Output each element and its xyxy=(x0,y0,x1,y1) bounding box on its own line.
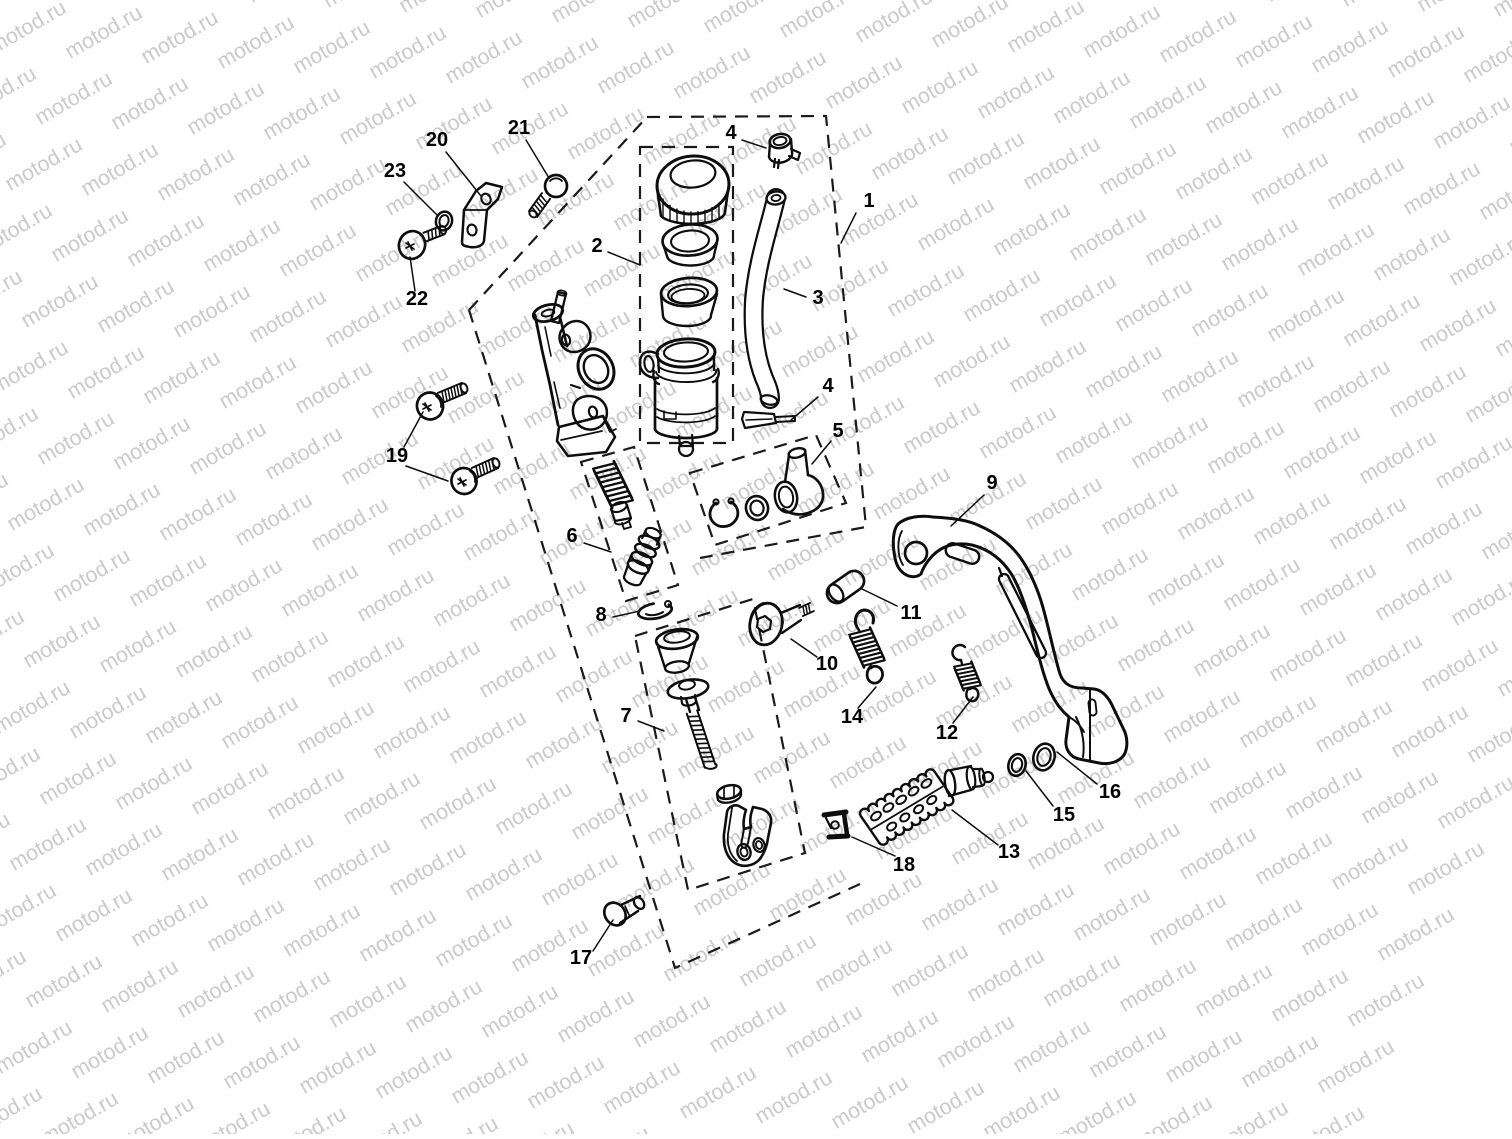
svg-text:motod.ru: motod.ru xyxy=(1281,760,1366,823)
svg-text:motod.ru: motod.ru xyxy=(95,614,180,677)
svg-text:motod.ru: motod.ru xyxy=(1413,0,1498,17)
svg-text:motod.ru: motod.ru xyxy=(201,553,286,616)
svg-text:motod.ru: motod.ru xyxy=(1417,633,1502,696)
svg-text:motod.ru: motod.ru xyxy=(1081,339,1166,402)
svg-text:motod.ru: motod.ru xyxy=(37,1086,122,1134)
svg-text:1: 1 xyxy=(863,190,874,212)
svg-text:motod.ru: motod.ru xyxy=(1399,156,1484,219)
svg-text:motod.ru: motod.ru xyxy=(307,492,392,555)
svg-text:motod.ru: motod.ru xyxy=(445,705,530,768)
svg-text:motod.ru: motod.ru xyxy=(353,563,438,626)
svg-text:3: 3 xyxy=(812,287,823,309)
svg-text:motod.ru: motod.ru xyxy=(265,1101,350,1134)
svg-text:motod.ru: motod.ru xyxy=(1049,65,1134,128)
svg-text:motod.ru: motod.ru xyxy=(611,512,696,575)
svg-text:motod.ru: motod.ru xyxy=(1115,953,1200,1016)
svg-text:motod.ru: motod.ru xyxy=(731,248,816,311)
svg-text:motod.ru: motod.ru xyxy=(229,147,314,210)
svg-text:motod.ru: motod.ru xyxy=(1249,486,1334,549)
svg-text:motod.ru: motod.ru xyxy=(811,933,896,996)
svg-text:motod.ru: motod.ru xyxy=(139,345,224,408)
svg-text:motod.ru: motod.ru xyxy=(187,756,272,819)
svg-text:motod.ru: motod.ru xyxy=(979,1080,1064,1134)
svg-text:motod.ru: motod.ru xyxy=(989,197,1074,260)
svg-text:motod.ru: motod.ru xyxy=(563,101,648,164)
svg-text:motod.ru: motod.ru xyxy=(1311,694,1396,757)
svg-text:motod.ru: motod.ru xyxy=(1175,821,1260,884)
svg-text:motod.ru: motod.ru xyxy=(339,766,424,829)
svg-text:motod.ru: motod.ru xyxy=(1265,623,1350,686)
svg-text:motod.ru: motod.ru xyxy=(857,1004,942,1067)
svg-text:motod.ru: motod.ru xyxy=(963,943,1048,1006)
svg-text:motod.ru: motod.ru xyxy=(17,269,102,332)
svg-text:motod.ru: motod.ru xyxy=(913,192,998,255)
svg-text:motod.ru: motod.ru xyxy=(705,994,790,1057)
svg-text:motod.ru: motod.ru xyxy=(1341,628,1426,691)
svg-text:motod.ru: motod.ru xyxy=(277,558,362,621)
svg-text:motod.ru: motod.ru xyxy=(1171,141,1256,204)
svg-text:motod.ru: motod.ru xyxy=(1155,4,1240,67)
svg-text:motod.ru: motod.ru xyxy=(1,132,86,195)
svg-text:motod.ru: motod.ru xyxy=(659,923,744,986)
svg-text:motod.ru: motod.ru xyxy=(1113,613,1198,676)
svg-text:motod.ru: motod.ru xyxy=(1401,496,1486,559)
svg-text:motod.ru: motod.ru xyxy=(65,680,150,743)
svg-text:motod.ru: motod.ru xyxy=(583,918,668,981)
svg-text:motod.ru: motod.ru xyxy=(593,35,678,98)
svg-text:motod.ru: motod.ru xyxy=(1251,826,1336,889)
svg-text:motod.ru: motod.ru xyxy=(569,1121,654,1134)
svg-text:motod.ru: motod.ru xyxy=(599,1055,684,1118)
svg-text:motod.ru: motod.ru xyxy=(1373,902,1458,965)
svg-text:motod.ru: motod.ru xyxy=(291,355,376,418)
svg-text:motod.ru: motod.ru xyxy=(93,274,178,337)
svg-text:motod.ru: motod.ru xyxy=(431,908,516,971)
svg-text:motod.ru: motod.ru xyxy=(1337,0,1422,12)
svg-text:motod.ru: motod.ru xyxy=(1067,542,1152,605)
svg-text:motod.ru: motod.ru xyxy=(319,0,404,13)
svg-text:18: 18 xyxy=(893,854,915,876)
svg-text:motod.ru: motod.ru xyxy=(475,639,560,702)
svg-text:motod.ru: motod.ru xyxy=(411,91,496,154)
svg-text:14: 14 xyxy=(841,706,864,728)
svg-text:motod.ru: motod.ru xyxy=(123,208,208,271)
svg-text:motod.ru: motod.ru xyxy=(1079,0,1164,63)
svg-text:motod.ru: motod.ru xyxy=(1051,405,1136,468)
svg-text:motod.ru: motod.ru xyxy=(109,411,194,474)
svg-text:motod.ru: motod.ru xyxy=(1325,491,1410,554)
svg-text:motod.ru: motod.ru xyxy=(0,1081,46,1134)
svg-text:motod.ru: motod.ru xyxy=(1279,420,1364,483)
svg-text:motod.ru: motod.ru xyxy=(243,0,328,8)
svg-text:motod.ru: motod.ru xyxy=(1387,699,1472,762)
svg-text:motod.ru: motod.ru xyxy=(31,66,116,129)
svg-text:motod.ru: motod.ru xyxy=(1099,816,1184,879)
svg-text:motod.ru: motod.ru xyxy=(107,71,192,134)
svg-text:motod.ru: motod.ru xyxy=(61,0,146,63)
svg-text:motod.ru: motod.ru xyxy=(1185,0,1270,2)
svg-text:motod.ru: motod.ru xyxy=(1069,882,1154,945)
svg-text:motod.ru: motod.ru xyxy=(1293,217,1378,280)
svg-text:motod.ru: motod.ru xyxy=(821,50,906,113)
svg-text:motod.ru: motod.ru xyxy=(325,969,410,1032)
svg-text:motod.ru: motod.ru xyxy=(887,938,972,1001)
svg-text:motod.ru: motod.ru xyxy=(461,842,546,905)
svg-text:motod.ru: motod.ru xyxy=(1005,334,1090,397)
svg-text:motod.ru: motod.ru xyxy=(503,233,588,296)
svg-text:motod.ru: motod.ru xyxy=(1159,684,1244,747)
svg-text:motod.ru: motod.ru xyxy=(399,634,484,697)
svg-text:2: 2 xyxy=(591,235,602,257)
svg-text:motod.ru: motod.ru xyxy=(791,116,876,179)
svg-text:motod.ru: motod.ru xyxy=(975,400,1060,463)
svg-text:motod.ru: motod.ru xyxy=(0,335,72,398)
svg-text:motod.ru: motod.ru xyxy=(675,1060,760,1123)
svg-text:motod.ru: motod.ru xyxy=(203,893,288,956)
svg-text:motod.ru: motod.ru xyxy=(643,786,728,849)
svg-text:motod.ru: motod.ru xyxy=(51,883,136,946)
svg-text:motod.ru: motod.ru xyxy=(1431,430,1512,493)
svg-text:motod.ru: motod.ru xyxy=(215,350,300,413)
svg-text:motod.ru: motod.ru xyxy=(245,284,330,347)
svg-text:motod.ru: motod.ru xyxy=(33,406,118,469)
svg-text:17: 17 xyxy=(570,947,592,969)
svg-text:motod.ru: motod.ru xyxy=(0,198,56,261)
svg-text:motod.ru: motod.ru xyxy=(1459,24,1512,87)
svg-text:motod.ru: motod.ru xyxy=(3,472,88,535)
svg-text:motod.ru: motod.ru xyxy=(809,593,894,656)
svg-text:motod.ru: motod.ru xyxy=(943,126,1028,189)
svg-text:motod.ru: motod.ru xyxy=(827,1070,912,1133)
svg-text:motod.ru: motod.ru xyxy=(77,137,162,200)
svg-text:motod.ru: motod.ru xyxy=(1221,892,1306,955)
svg-text:motod.ru: motod.ru xyxy=(0,0,70,59)
svg-text:motod.ru: motod.ru xyxy=(567,781,652,844)
svg-text:motod.ru: motod.ru xyxy=(749,725,834,788)
svg-text:motod.ru: motod.ru xyxy=(853,324,938,387)
svg-text:motod.ru: motod.ru xyxy=(973,60,1058,123)
svg-text:motod.ru: motod.ru xyxy=(1111,273,1196,336)
svg-text:motod.ru: motod.ru xyxy=(259,81,344,144)
svg-text:motod.ru: motod.ru xyxy=(841,867,926,930)
svg-text:motod.ru: motod.ru xyxy=(5,812,90,875)
svg-text:motod.ru: motod.ru xyxy=(1429,90,1512,153)
svg-text:motod.ru: motod.ru xyxy=(335,86,420,149)
svg-text:motod.ru: motod.ru xyxy=(0,1015,76,1078)
svg-text:motod.ru: motod.ru xyxy=(1343,968,1428,1031)
svg-text:motod.ru: motod.ru xyxy=(383,497,468,560)
svg-text:motod.ru: motod.ru xyxy=(581,578,666,641)
svg-text:5: 5 xyxy=(832,420,843,442)
svg-text:motod.ru: motod.ru xyxy=(883,258,968,321)
svg-text:motod.ru: motod.ru xyxy=(49,543,134,606)
svg-text:motod.ru: motod.ru xyxy=(1309,354,1394,417)
svg-text:motod.ru: motod.ru xyxy=(777,319,862,382)
svg-text:motod.ru: motod.ru xyxy=(745,45,830,108)
svg-text:motod.ru: motod.ru xyxy=(1007,674,1092,737)
svg-text:motod.ru: motod.ru xyxy=(447,1045,532,1108)
svg-text:motod.ru: motod.ru xyxy=(1461,364,1512,427)
svg-text:motod.ru: motod.ru xyxy=(1021,471,1106,534)
svg-text:motod.ru: motod.ru xyxy=(1463,704,1512,767)
svg-text:motod.ru: motod.ru xyxy=(1207,1095,1292,1134)
svg-text:11: 11 xyxy=(900,602,921,624)
svg-text:motod.ru: motod.ru xyxy=(471,0,556,23)
svg-text:motod.ru: motod.ru xyxy=(1189,618,1274,681)
svg-text:motod.ru: motod.ru xyxy=(395,0,480,18)
svg-text:motod.ru: motod.ru xyxy=(751,1065,836,1128)
svg-text:motod.ru: motod.ru xyxy=(247,624,332,687)
svg-text:motod.ru: motod.ru xyxy=(1205,755,1290,818)
svg-text:motod.ru: motod.ru xyxy=(173,959,258,1022)
svg-text:motod.ru: motod.ru xyxy=(551,644,636,707)
svg-text:motod.ru: motod.ru xyxy=(1235,689,1320,752)
svg-text:motod.ru: motod.ru xyxy=(825,730,910,793)
svg-text:12: 12 xyxy=(936,722,958,744)
svg-text:motod.ru: motod.ru xyxy=(597,715,682,778)
svg-text:motod.ru: motod.ru xyxy=(79,477,164,540)
svg-text:motod.ru: motod.ru xyxy=(81,817,166,880)
svg-text:motod.ru: motod.ru xyxy=(141,685,226,748)
svg-text:motod.ru: motod.ru xyxy=(623,0,708,33)
svg-text:motod.ru: motod.ru xyxy=(1157,344,1242,407)
svg-text:motod.ru: motod.ru xyxy=(1339,288,1424,351)
svg-text:motod.ru: motod.ru xyxy=(1489,0,1512,22)
svg-text:motod.ru: motod.ru xyxy=(1327,831,1412,894)
svg-text:motod.ru: motod.ru xyxy=(533,167,618,230)
svg-text:motod.ru: motod.ru xyxy=(219,1030,304,1093)
svg-text:motod.ru: motod.ru xyxy=(993,877,1078,940)
svg-text:motod.ru: motod.ru xyxy=(385,837,470,900)
svg-text:motod.ru: motod.ru xyxy=(185,416,270,479)
svg-text:motod.ru: motod.ru xyxy=(867,121,952,184)
svg-text:motod.ru: motod.ru xyxy=(547,0,632,28)
svg-text:motod.ru: motod.ru xyxy=(323,629,408,692)
svg-text:motod.ru: motod.ru xyxy=(261,421,346,484)
svg-text:motod.ru: motod.ru xyxy=(1383,19,1468,82)
svg-text:motod.ru: motod.ru xyxy=(233,827,318,890)
svg-text:motod.ru: motod.ru xyxy=(153,142,238,205)
svg-text:4: 4 xyxy=(822,375,834,397)
svg-text:motod.ru: motod.ru xyxy=(21,949,106,1012)
svg-text:motod.ru: motod.ru xyxy=(217,690,302,753)
svg-text:motod.ru: motod.ru xyxy=(1003,0,1088,58)
svg-text:9: 9 xyxy=(986,472,997,494)
svg-text:motod.ru: motod.ru xyxy=(839,527,924,590)
svg-text:motod.ru: motod.ru xyxy=(1201,75,1286,138)
svg-text:motod.ru: motod.ru xyxy=(401,974,486,1037)
svg-text:motod.ru: motod.ru xyxy=(1295,557,1380,620)
svg-text:motod.ru: motod.ru xyxy=(0,675,74,738)
svg-text:motod.ru: motod.ru xyxy=(321,289,406,352)
svg-text:motod.ru: motod.ru xyxy=(1143,547,1228,610)
svg-text:motod.ru: motod.ru xyxy=(669,40,754,103)
svg-text:motod.ru: motod.ru xyxy=(143,1025,228,1088)
svg-text:motod.ru: motod.ru xyxy=(1307,14,1392,77)
svg-text:19: 19 xyxy=(386,445,408,467)
svg-text:motod.ru: motod.ru xyxy=(35,746,120,809)
svg-text:motod.ru: motod.ru xyxy=(263,761,348,824)
svg-text:motod.ru: motod.ru xyxy=(427,228,512,291)
svg-text:motod.ru: motod.ru xyxy=(1203,415,1288,478)
svg-text:motod.ru: motod.ru xyxy=(113,1091,198,1134)
svg-text:motod.ru: motod.ru xyxy=(1369,222,1454,285)
svg-text:motod.ru: motod.ru xyxy=(959,263,1044,326)
svg-text:motod.ru: motod.ru xyxy=(371,1040,456,1103)
svg-text:motod.ru: motod.ru xyxy=(521,710,606,773)
svg-text:motod.ru: motod.ru xyxy=(63,340,148,403)
svg-text:16: 16 xyxy=(1099,781,1121,803)
svg-text:motod.ru: motod.ru xyxy=(1219,552,1304,615)
svg-text:motod.ru: motod.ru xyxy=(645,1126,730,1134)
svg-text:motod.ru: motod.ru xyxy=(1191,958,1276,1021)
svg-text:motod.ru: motod.ru xyxy=(699,0,784,38)
svg-text:motod.ru: motod.ru xyxy=(355,903,440,966)
svg-text:motod.ru: motod.ru xyxy=(1161,1024,1246,1087)
svg-text:motod.ru: motod.ru xyxy=(1237,1029,1322,1092)
svg-text:8: 8 xyxy=(595,604,606,626)
svg-text:motod.ru: motod.ru xyxy=(279,898,364,961)
svg-text:motod.ru: motod.ru xyxy=(1323,151,1408,214)
svg-text:15: 15 xyxy=(1053,804,1075,826)
svg-text:motod.ru: motod.ru xyxy=(899,395,984,458)
svg-text:motod.ru: motod.ru xyxy=(781,999,866,1062)
svg-text:motod.ru: motod.ru xyxy=(309,832,394,895)
svg-text:motod.ru: motod.ru xyxy=(1037,608,1122,671)
svg-text:motod.ru: motod.ru xyxy=(1187,278,1272,341)
svg-text:motod.ru: motod.ru xyxy=(341,1106,426,1134)
svg-text:motod.ru: motod.ru xyxy=(365,20,450,83)
svg-text:motod.ru: motod.ru xyxy=(1263,283,1348,346)
svg-text:motod.ru: motod.ru xyxy=(1277,80,1362,143)
svg-text:motod.ru: motod.ru xyxy=(1095,136,1180,199)
svg-text:motod.ru: motod.ru xyxy=(1145,887,1230,950)
svg-text:4: 4 xyxy=(725,122,737,144)
svg-text:motod.ru: motod.ru xyxy=(1009,1014,1094,1077)
svg-text:motod.ru: motod.ru xyxy=(477,979,562,1042)
svg-text:motod.ru: motod.ru xyxy=(97,954,182,1017)
svg-text:motod.ru: motod.ru xyxy=(1313,1034,1398,1097)
svg-text:motod.ru: motod.ru xyxy=(111,751,196,814)
svg-text:motod.ru: motod.ru xyxy=(915,532,1000,595)
svg-text:motod.ru: motod.ru xyxy=(929,329,1014,392)
svg-text:13: 13 xyxy=(998,841,1020,863)
svg-text:motod.ru: motod.ru xyxy=(885,598,970,661)
svg-text:motod.ru: motod.ru xyxy=(1085,1019,1170,1082)
svg-text:motod.ru: motod.ru xyxy=(295,1035,380,1098)
svg-text:motod.ru: motod.ru xyxy=(167,0,252,3)
svg-text:motod.ru: motod.ru xyxy=(1173,481,1258,544)
svg-text:motod.ru: motod.ru xyxy=(903,1075,988,1134)
svg-text:6: 6 xyxy=(566,525,577,547)
svg-text:motod.ru: motod.ru xyxy=(275,218,360,281)
svg-text:motod.ru: motod.ru xyxy=(137,5,222,68)
svg-text:motod.ru: motod.ru xyxy=(183,76,268,139)
svg-text:motod.ru: motod.ru xyxy=(231,487,316,550)
svg-text:motod.ru: motod.ru xyxy=(289,15,374,78)
svg-text:7: 7 xyxy=(620,705,631,727)
svg-text:motod.ru: motod.ru xyxy=(67,1020,152,1083)
svg-text:motod.ru: motod.ru xyxy=(733,588,818,651)
svg-text:motod.ru: motod.ru xyxy=(169,279,254,342)
svg-text:motod.ru: motod.ru xyxy=(441,25,526,88)
svg-text:motod.ru: motod.ru xyxy=(1019,131,1104,194)
svg-text:22: 22 xyxy=(406,288,428,310)
svg-text:motod.ru: motod.ru xyxy=(553,984,638,1047)
svg-text:motod.ru: motod.ru xyxy=(199,213,284,276)
svg-text:motod.ru: motod.ru xyxy=(1433,770,1512,833)
svg-text:motod.ru: motod.ru xyxy=(1353,85,1438,148)
svg-text:motod.ru: motod.ru xyxy=(47,203,132,266)
svg-text:motod.ru: motod.ru xyxy=(249,964,334,1027)
svg-text:motod.ru: motod.ru xyxy=(127,888,212,951)
svg-text:motod.ru: motod.ru xyxy=(1283,1100,1368,1134)
svg-text:21: 21 xyxy=(508,117,530,139)
svg-text:motod.ru: motod.ru xyxy=(629,989,714,1052)
svg-text:motod.ru: motod.ru xyxy=(493,1116,578,1134)
svg-text:23: 23 xyxy=(384,160,406,182)
svg-text:motod.ru: motod.ru xyxy=(1415,293,1500,356)
svg-text:motod.ru: motod.ru xyxy=(1247,146,1332,209)
svg-text:motod.ru: motod.ru xyxy=(703,654,788,717)
svg-text:motod.ru: motod.ru xyxy=(155,482,240,545)
svg-text:motod.ru: motod.ru xyxy=(415,771,500,834)
svg-text:motod.ru: motod.ru xyxy=(213,10,298,73)
svg-text:motod.ru: motod.ru xyxy=(1355,425,1440,488)
svg-text:motod.ru: motod.ru xyxy=(837,187,922,250)
svg-text:motod.ru: motod.ru xyxy=(897,55,982,118)
svg-text:motod.ru: motod.ru xyxy=(1065,202,1150,265)
svg-text:motod.ru: motod.ru xyxy=(1357,765,1442,828)
svg-text:motod.ru: motod.ru xyxy=(459,502,544,565)
svg-text:motod.ru: motod.ru xyxy=(1385,359,1470,422)
svg-text:motod.ru: motod.ru xyxy=(369,700,454,763)
svg-text:motod.ru: motod.ru xyxy=(125,548,210,611)
svg-text:motod.ru: motod.ru xyxy=(189,1096,274,1134)
svg-text:motod.ru: motod.ru xyxy=(927,0,1012,53)
svg-text:motod.ru: motod.ru xyxy=(1371,562,1456,625)
svg-text:motod.ru: motod.ru xyxy=(1297,897,1382,960)
svg-text:motod.ru: motod.ru xyxy=(735,928,820,991)
svg-text:motod.ru: motod.ru xyxy=(0,538,58,601)
svg-text:motod.ru: motod.ru xyxy=(869,461,954,524)
svg-text:motod.ru: motod.ru xyxy=(1035,268,1120,331)
svg-text:motod.ru: motod.ru xyxy=(917,872,1002,935)
svg-text:motod.ru: motod.ru xyxy=(1447,567,1512,630)
svg-text:motod.ru: motod.ru xyxy=(851,0,936,48)
svg-text:motod.ru: motod.ru xyxy=(1445,227,1512,290)
svg-text:motod.ru: motod.ru xyxy=(1039,948,1124,1011)
svg-text:motod.ru: motod.ru xyxy=(1403,836,1488,899)
svg-text:motod.ru: motod.ru xyxy=(523,1050,608,1113)
svg-text:motod.ru: motod.ru xyxy=(19,609,104,672)
svg-text:motod.ru: motod.ru xyxy=(1233,349,1318,412)
svg-text:motod.ru: motod.ru xyxy=(1231,9,1316,72)
svg-text:motod.ru: motod.ru xyxy=(1261,0,1346,7)
svg-text:motod.ru: motod.ru xyxy=(1267,963,1352,1026)
svg-text:motod.ru: motod.ru xyxy=(417,1111,502,1134)
svg-text:motod.ru: motod.ru xyxy=(171,619,256,682)
svg-text:motod.ru: motod.ru xyxy=(157,822,242,885)
svg-text:motod.ru: motod.ru xyxy=(1127,410,1212,473)
svg-text:motod.ru: motod.ru xyxy=(305,152,390,215)
svg-text:motod.ru: motod.ru xyxy=(1125,70,1210,133)
svg-text:motod.ru: motod.ru xyxy=(293,695,378,758)
svg-text:motod.ru: motod.ru xyxy=(537,847,622,910)
svg-text:motod.ru: motod.ru xyxy=(673,720,758,783)
svg-text:motod.ru: motod.ru xyxy=(775,0,860,43)
svg-text:motod.ru: motod.ru xyxy=(429,568,514,631)
